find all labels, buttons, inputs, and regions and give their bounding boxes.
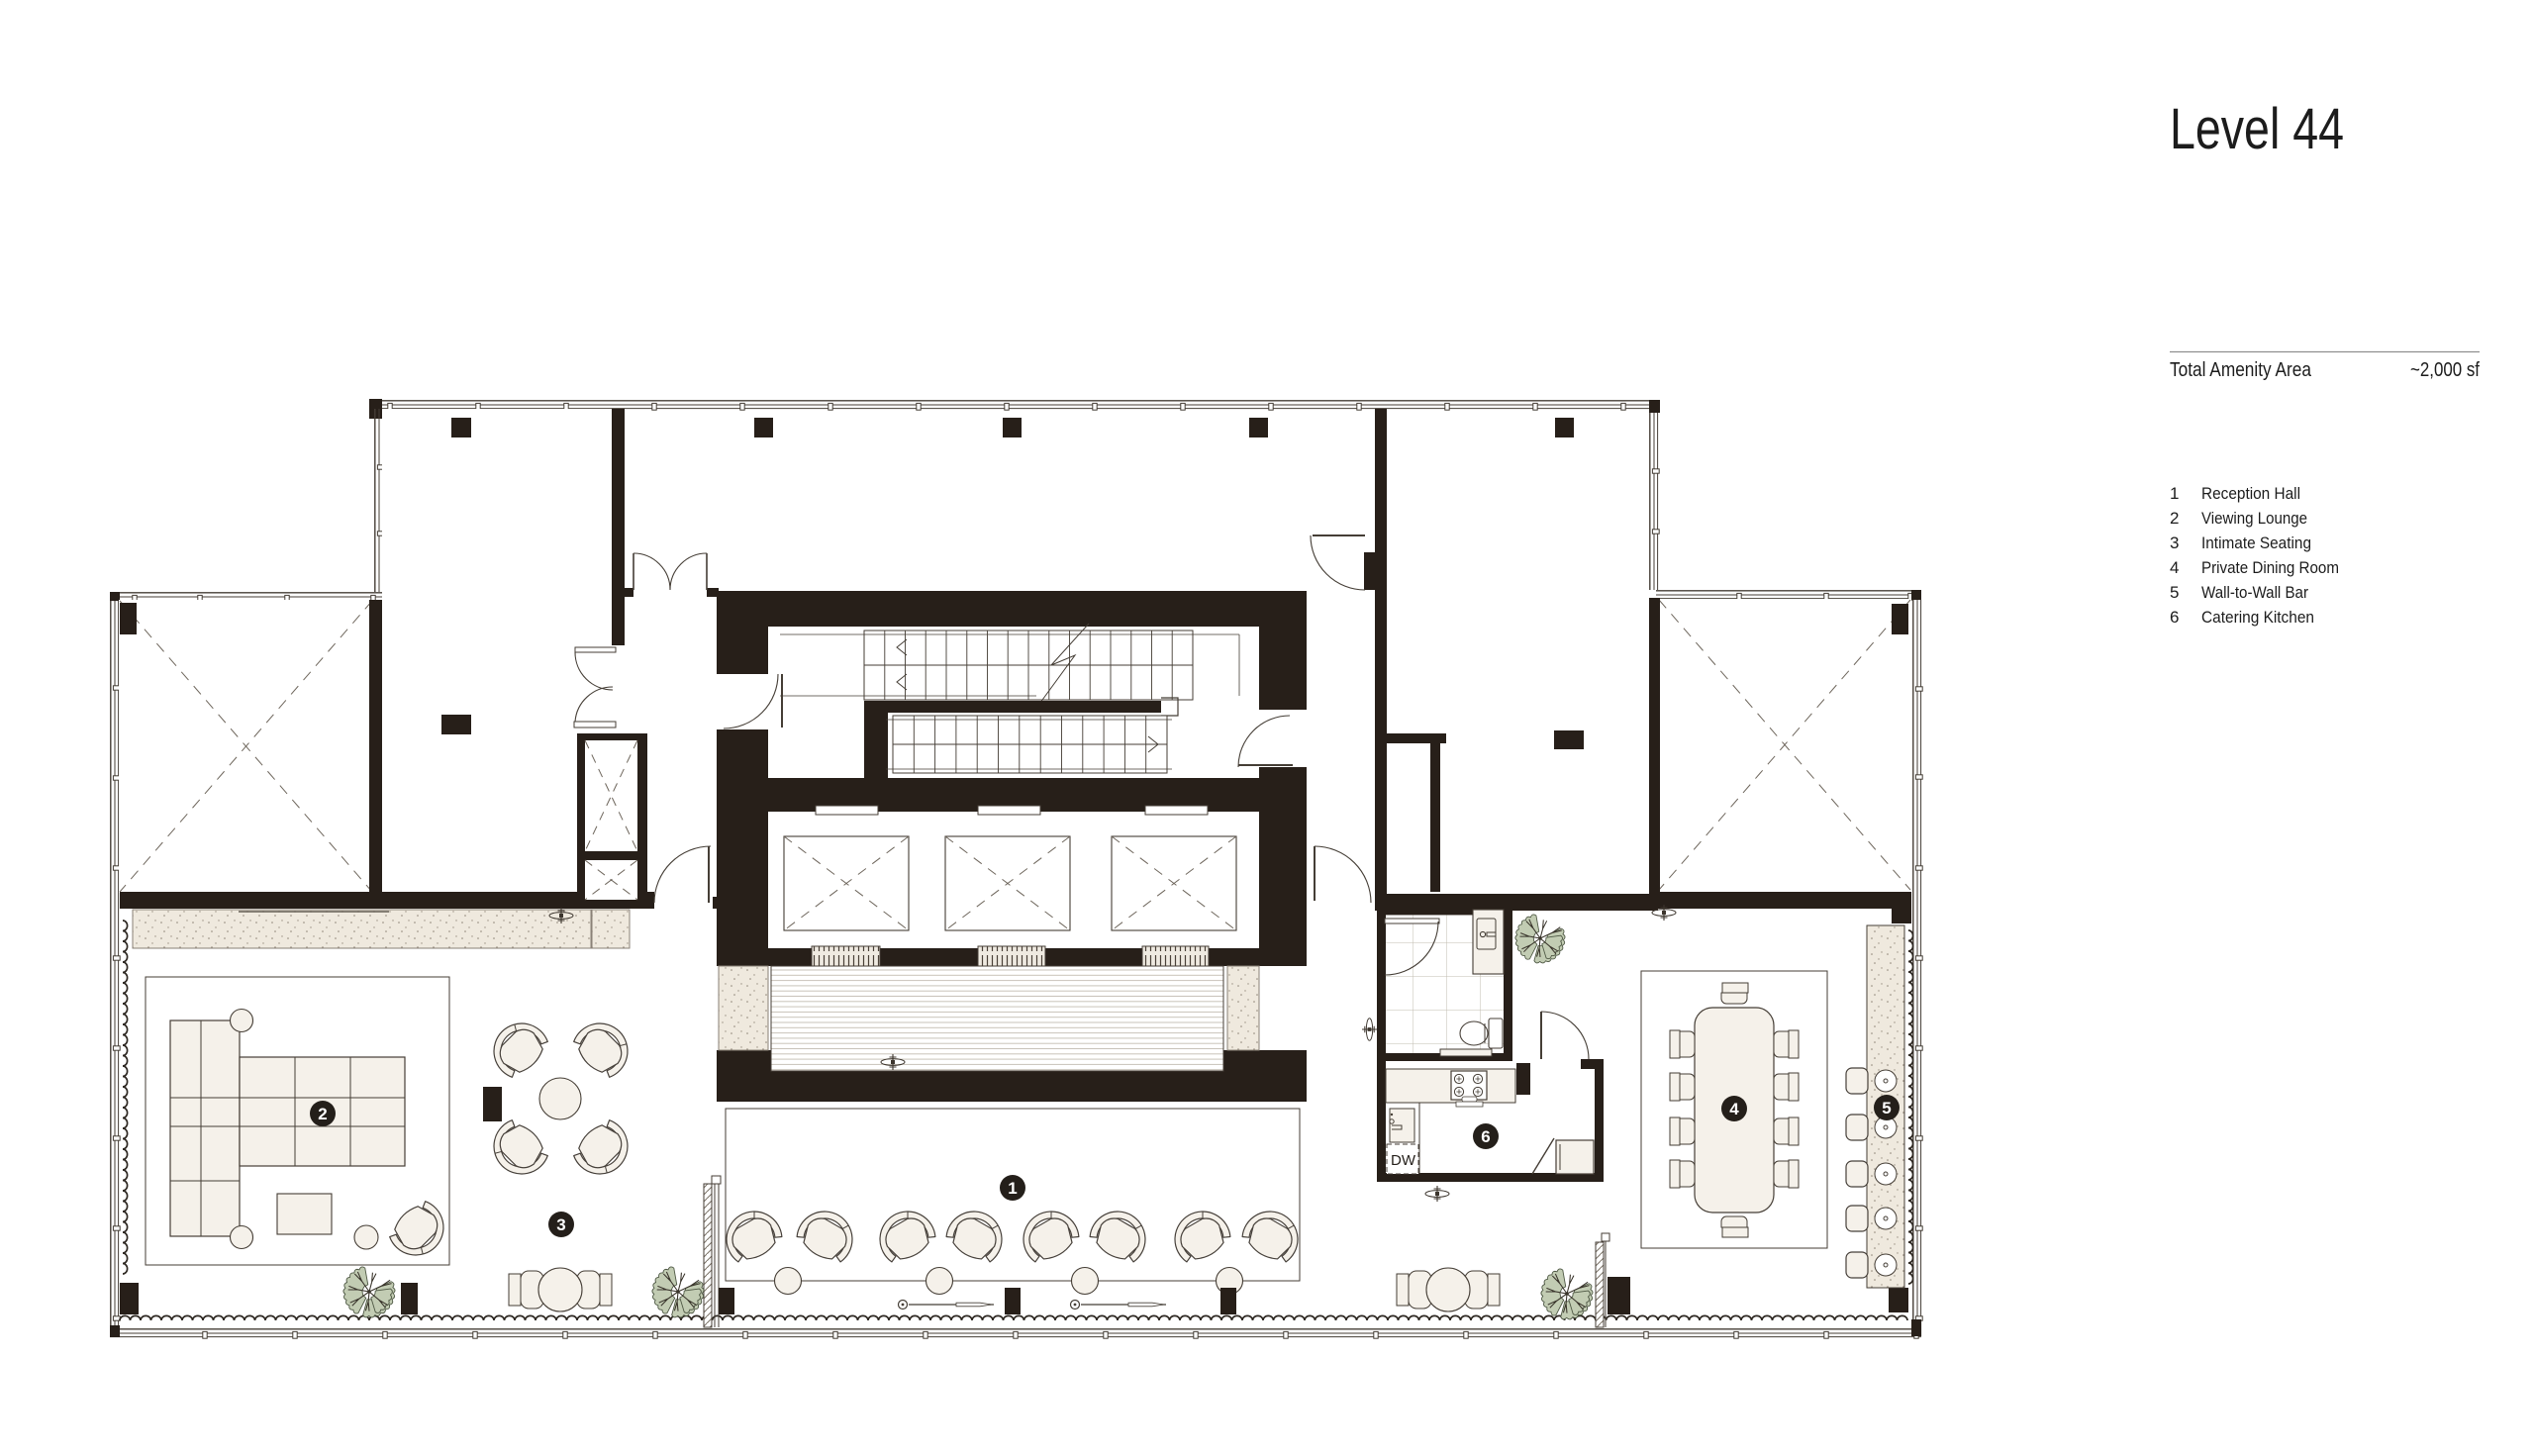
svg-text:Intimate Seating: Intimate Seating — [2201, 534, 2311, 552]
svg-text:3: 3 — [2170, 534, 2179, 552]
svg-text:~2,000 sf: ~2,000 sf — [2410, 359, 2480, 381]
svg-text:Level 44: Level 44 — [2170, 97, 2344, 161]
svg-text:Catering Kitchen: Catering Kitchen — [2201, 608, 2314, 627]
svg-text:5: 5 — [2170, 583, 2179, 602]
svg-text:3: 3 — [556, 1215, 565, 1234]
svg-text:2: 2 — [2170, 509, 2179, 528]
svg-text:5: 5 — [1882, 1099, 1891, 1117]
svg-text:6: 6 — [1481, 1127, 1490, 1146]
svg-text:4: 4 — [2170, 558, 2179, 577]
svg-text:Wall-to-Wall Bar: Wall-to-Wall Bar — [2201, 583, 2308, 602]
svg-text:2: 2 — [318, 1105, 327, 1123]
svg-text:Viewing Lounge: Viewing Lounge — [2201, 509, 2307, 528]
svg-text:6: 6 — [2170, 608, 2179, 627]
svg-text:Reception Hall: Reception Hall — [2201, 484, 2300, 503]
svg-text:Total Amenity Area: Total Amenity Area — [2170, 359, 2312, 381]
svg-text:1: 1 — [1008, 1179, 1017, 1198]
svg-text:1: 1 — [2170, 484, 2179, 503]
svg-text:Private Dining Room: Private Dining Room — [2201, 558, 2339, 577]
svg-text:DW: DW — [1391, 1152, 1416, 1169]
svg-text:4: 4 — [1729, 1100, 1739, 1118]
